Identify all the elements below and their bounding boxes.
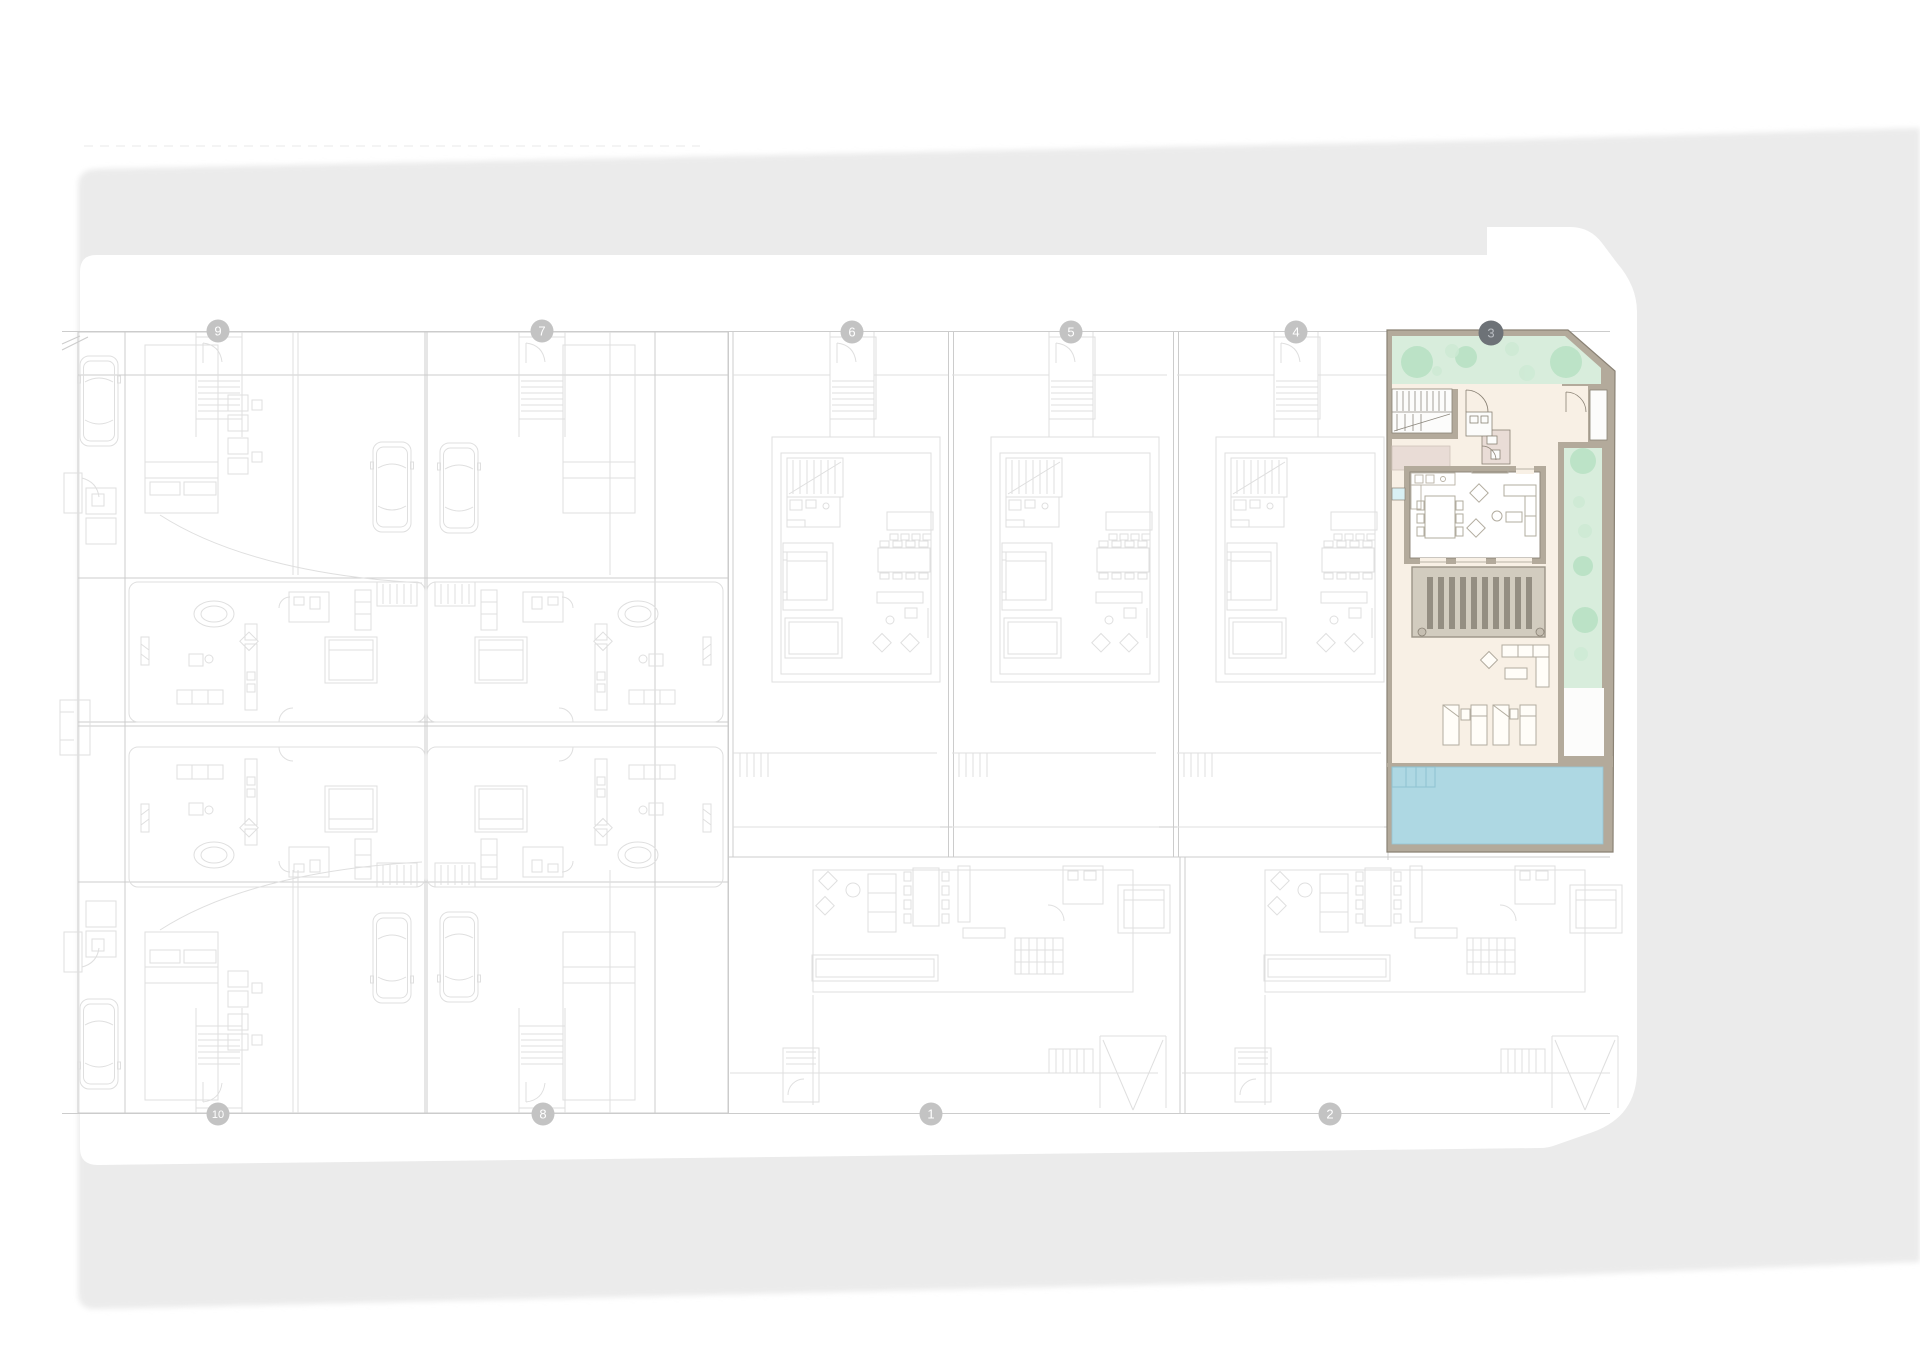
plot-badge-number: 7 bbox=[538, 324, 545, 339]
plot-badge-number: 1 bbox=[927, 1107, 934, 1122]
masterplan-canvas: 9 7 6 5 4 3 10 8 bbox=[0, 0, 1920, 1357]
plot-badge-number: 6 bbox=[848, 325, 855, 340]
unit-3-highlight[interactable] bbox=[1387, 330, 1615, 852]
plot-badge-3-selected[interactable]: 3 bbox=[1479, 321, 1504, 346]
plot-badge-4[interactable]: 4 bbox=[1285, 321, 1308, 344]
plot-badge-6[interactable]: 6 bbox=[841, 321, 864, 344]
plot-badge-number: 10 bbox=[212, 1109, 224, 1121]
living-room bbox=[1404, 464, 1546, 566]
plot-badge-number: 5 bbox=[1067, 325, 1074, 340]
plot-badge-7[interactable]: 7 bbox=[531, 320, 554, 343]
plot-badge-number: 4 bbox=[1292, 325, 1299, 340]
deck-pergola bbox=[1412, 567, 1545, 637]
plot-badge-number: 8 bbox=[539, 1107, 546, 1122]
plot-badge-1[interactable]: 1 bbox=[920, 1103, 943, 1126]
plot-badge-number: 9 bbox=[214, 324, 221, 339]
site-plan: 9 7 6 5 4 3 10 8 bbox=[0, 0, 1920, 1357]
plot-badge-9[interactable]: 9 bbox=[207, 320, 230, 343]
plot-badge-8[interactable]: 8 bbox=[532, 1103, 555, 1126]
background-surfaces bbox=[0, 0, 1920, 1357]
plot-badge-2[interactable]: 2 bbox=[1319, 1103, 1342, 1126]
plot-badge-10[interactable]: 10 bbox=[207, 1103, 230, 1126]
plot-badge-number: 3 bbox=[1487, 326, 1494, 341]
unit-staircase bbox=[1392, 389, 1452, 433]
pool bbox=[1392, 767, 1603, 844]
water-feature bbox=[1392, 488, 1405, 500]
plot-badge-number: 2 bbox=[1326, 1107, 1333, 1122]
plot-badge-5[interactable]: 5 bbox=[1060, 321, 1083, 344]
